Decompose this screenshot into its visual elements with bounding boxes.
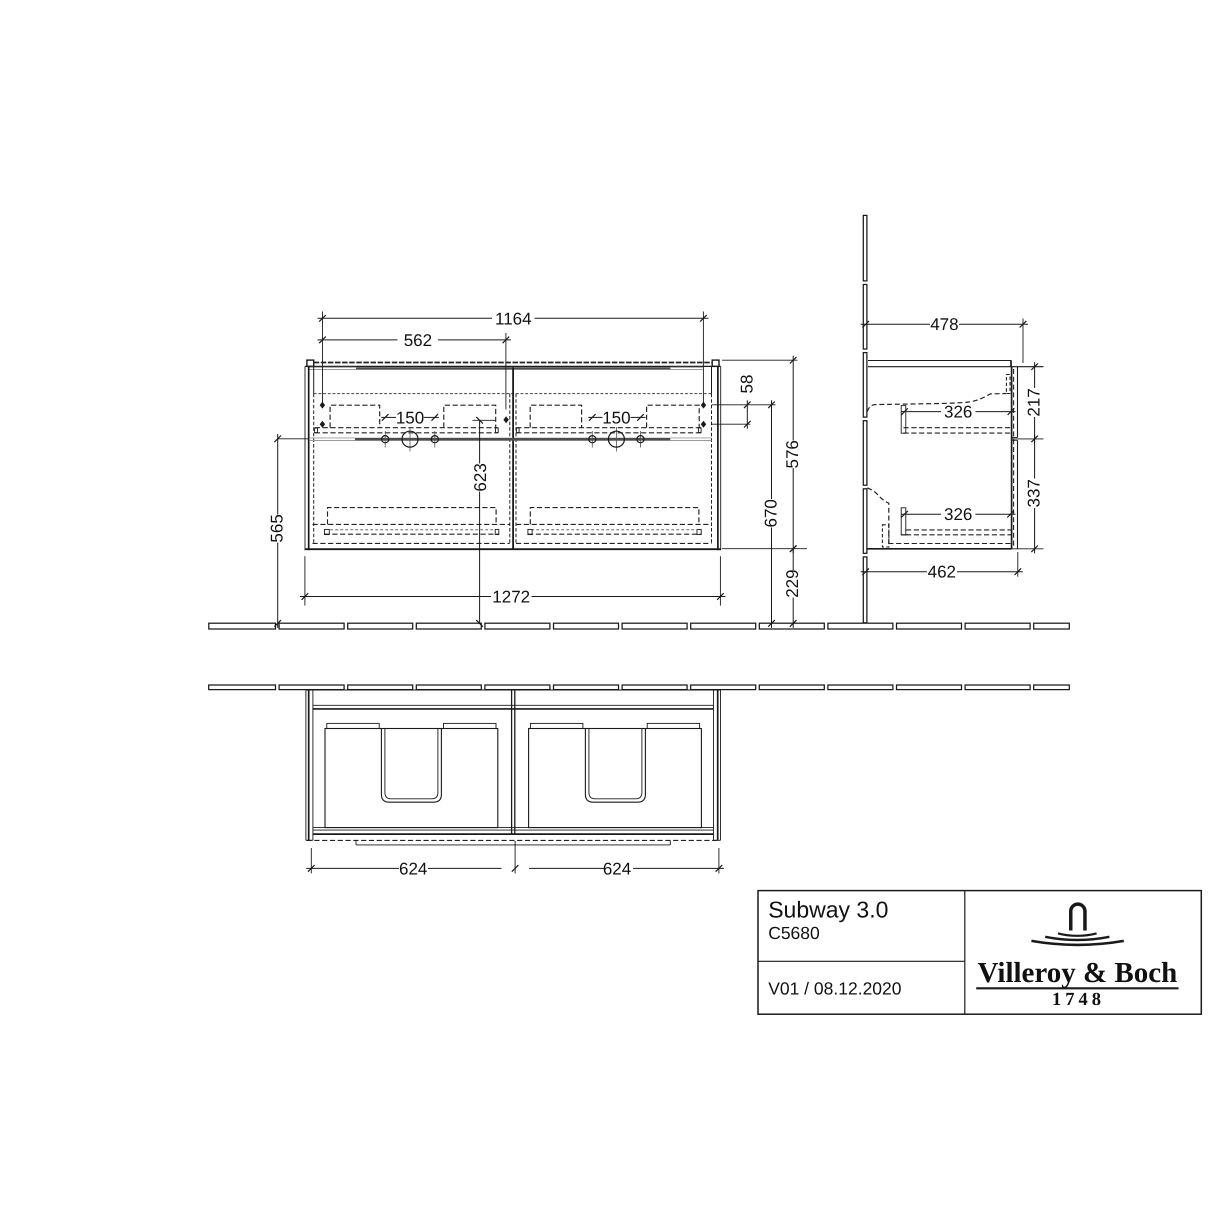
svg-text:670: 670 — [761, 499, 780, 527]
svg-text:478: 478 — [930, 315, 958, 334]
svg-text:229: 229 — [783, 569, 802, 597]
svg-text:150: 150 — [396, 408, 424, 427]
svg-text:C5680: C5680 — [768, 923, 820, 943]
svg-text:337: 337 — [1024, 479, 1043, 507]
svg-text:624: 624 — [603, 859, 631, 878]
svg-text:1164: 1164 — [495, 309, 532, 328]
svg-text:1272: 1272 — [492, 588, 530, 607]
svg-text:150: 150 — [602, 408, 630, 427]
svg-text:624: 624 — [399, 859, 427, 878]
svg-text:1748: 1748 — [1052, 990, 1105, 1010]
svg-text:462: 462 — [928, 563, 956, 582]
svg-text:Subway 3.0: Subway 3.0 — [768, 897, 888, 923]
svg-text:58: 58 — [737, 375, 756, 394]
svg-text:326: 326 — [944, 505, 972, 524]
svg-text:623: 623 — [471, 463, 490, 491]
svg-text:565: 565 — [268, 514, 287, 542]
svg-text:326: 326 — [944, 403, 972, 422]
svg-text:Villeroy & Boch: Villeroy & Boch — [978, 957, 1178, 989]
svg-text:576: 576 — [783, 440, 802, 468]
svg-text:562: 562 — [404, 331, 432, 350]
svg-text:217: 217 — [1024, 388, 1043, 416]
svg-text:V01 / 08.12.2020: V01 / 08.12.2020 — [768, 978, 902, 998]
